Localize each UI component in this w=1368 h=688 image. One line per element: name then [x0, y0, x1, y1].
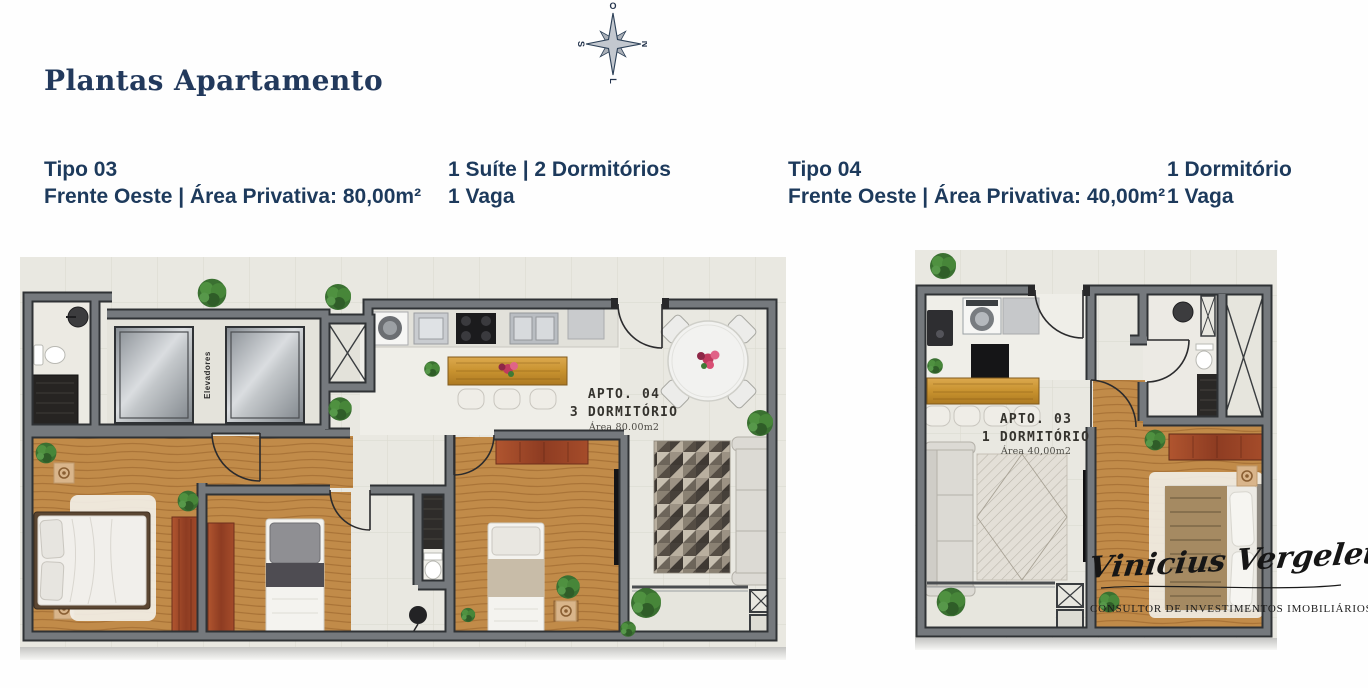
- sofa-2: [925, 442, 975, 596]
- plan-04-apto-label: Apto. 03: [1000, 412, 1072, 427]
- bedroom2-wardrobe: [208, 523, 234, 633]
- unit-04-type-label: Tipo 04: [788, 156, 1165, 183]
- compass-south-label: S: [577, 41, 586, 47]
- signature-flourish: [1096, 582, 1346, 592]
- unit-03-features: 1 Suíte | 2 Dormitórios 1 Vaga: [448, 156, 671, 210]
- bedroom2: [208, 519, 324, 635]
- bedroom-wardrobe-2: [1169, 434, 1263, 460]
- unit-03-header: Tipo 03 Frente Oeste | Área Privativa: 8…: [44, 156, 421, 210]
- plan-03-area-label: Área 80.00m2: [588, 421, 659, 433]
- bedroom2-bed: [266, 519, 324, 635]
- master-bed: [34, 512, 150, 609]
- unit-03-type-label: Tipo 03: [44, 156, 421, 183]
- plan-04-area-label: Área 40,00m2: [1000, 445, 1071, 457]
- elevators-label: Elevadores: [203, 351, 212, 399]
- plan-03-dorm-label: 3 Dormitório: [570, 404, 678, 420]
- unit-04-header: Tipo 04 Frente Oeste | Área Privativa: 4…: [788, 156, 1165, 210]
- page: O N L S Plantas Apartamento Tipo 03 Fren…: [0, 0, 1368, 688]
- signature-role: CONSULTOR DE INVESTIMENTOS IMOBILIÁRIOS: [1090, 603, 1352, 615]
- unit-03-front-area-label: Frente Oeste | Área Privativa: 80,00m²: [44, 183, 421, 210]
- unit-04-features-line1: 1 Dormitório: [1167, 156, 1292, 183]
- unit-03-features-line2: 1 Vaga: [448, 183, 671, 210]
- compass-west-label: O: [609, 1, 616, 11]
- compass-north-label: N: [640, 41, 647, 48]
- unit-04-front-area-label: Frente Oeste | Área Privativa: 40,00m²: [788, 183, 1165, 210]
- bedroom3-bed: [488, 523, 544, 635]
- unit-03-features-line1: 1 Suíte | 2 Dormitórios: [448, 156, 671, 183]
- living-room: [654, 437, 774, 585]
- dining-table: [659, 313, 757, 409]
- plan-04-dorm-label: 1 Dormitório: [982, 429, 1090, 445]
- floorplan-tipo-03: Elevadores: [20, 257, 786, 660]
- living-room-2: [925, 442, 1091, 596]
- master-wardrobe: [172, 517, 200, 635]
- signature-block: Vinicius Vergeletti CONSULTOR DE INVESTI…: [1090, 544, 1352, 615]
- compass-east-label: L: [608, 78, 618, 84]
- compass-rose-icon: O N L S: [577, 0, 647, 85]
- unit-04-features-line2: 1 Vaga: [1167, 183, 1292, 210]
- signature-name: Vinicius Vergeletti: [1087, 537, 1355, 586]
- living-rug: [654, 441, 730, 573]
- plan-03-apto-label: Apto. 04: [588, 387, 660, 402]
- page-title: Plantas Apartamento: [44, 64, 383, 97]
- unit-04-features: 1 Dormitório 1 Vaga: [1167, 156, 1292, 210]
- bedroom3-wardrobe: [496, 440, 588, 464]
